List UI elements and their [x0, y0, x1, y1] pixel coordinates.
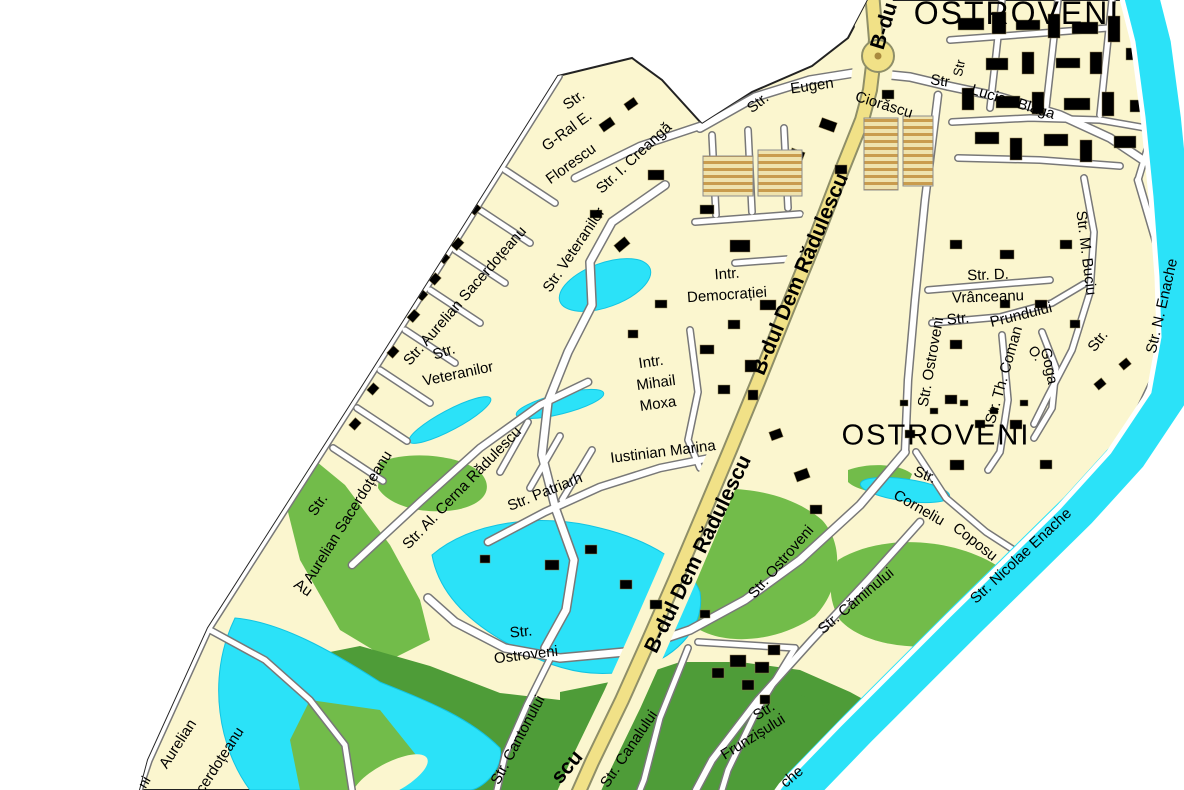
map-canvas[interactable]: OSTROVENIOSTROVENIB-duB-dul Dem Rădulesc…: [0, 0, 1184, 790]
map-image: [0, 0, 1184, 790]
